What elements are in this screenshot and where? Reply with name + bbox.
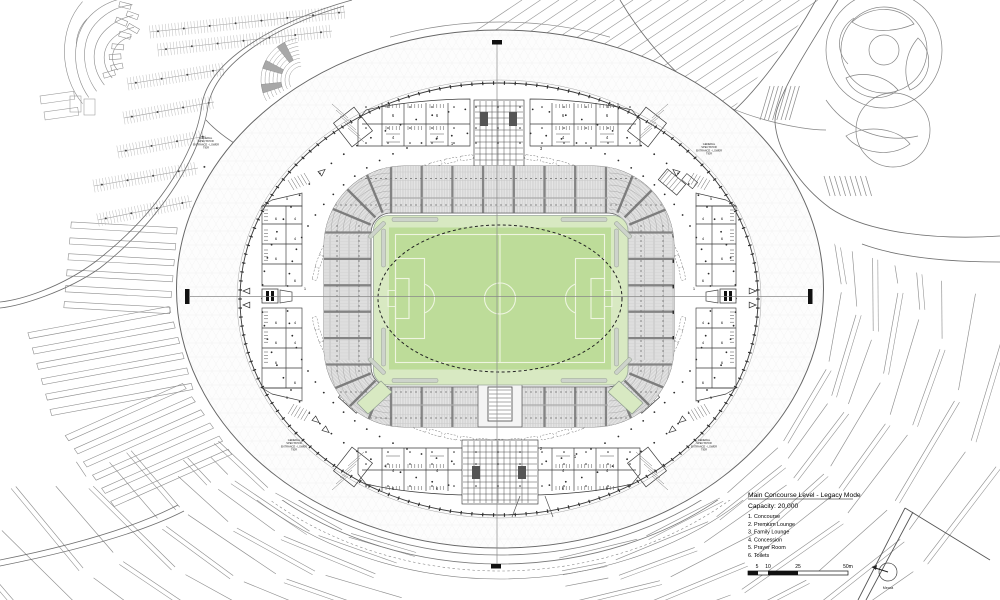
svg-text:Main Concourse Level - Legacy: Main Concourse Level - Legacy Mode bbox=[748, 492, 861, 499]
svg-text:3. Family Lounge: 3. Family Lounge bbox=[748, 530, 789, 536]
svg-text:2. Premium Lounge: 2. Premium Lounge bbox=[748, 522, 795, 528]
svg-text:1. Concourse: 1. Concourse bbox=[748, 514, 780, 520]
svg-text:5. Prayer Room: 5. Prayer Room bbox=[748, 545, 786, 551]
svg-text:50m: 50m bbox=[843, 564, 853, 570]
svg-text:TIER: TIER bbox=[291, 448, 297, 452]
svg-text:TIER: TIER bbox=[706, 152, 712, 156]
svg-text:4. Concession: 4. Concession bbox=[748, 537, 782, 543]
svg-text:5: 5 bbox=[756, 564, 759, 570]
svg-text:TIER: TIER bbox=[203, 146, 209, 150]
svg-text:Mecca: Mecca bbox=[883, 586, 894, 590]
svg-text:25: 25 bbox=[795, 564, 801, 570]
svg-text:10: 10 bbox=[765, 564, 771, 570]
svg-text:TIER: TIER bbox=[701, 448, 707, 452]
svg-text:6. Toilets: 6. Toilets bbox=[748, 553, 769, 559]
svg-text:Capacity: 20,000: Capacity: 20,000 bbox=[748, 503, 798, 510]
